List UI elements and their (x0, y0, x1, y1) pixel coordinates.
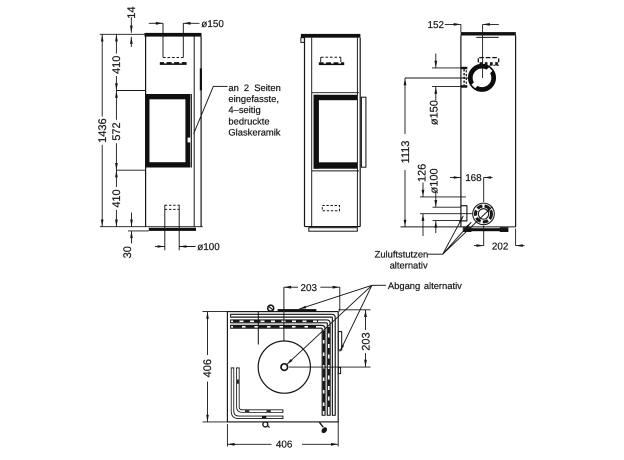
svg-text:152: 152 (428, 20, 444, 31)
svg-text:572: 572 (111, 122, 123, 140)
svg-text:168: 168 (465, 173, 482, 184)
svg-text:126: 126 (416, 164, 428, 182)
svg-text:410: 410 (111, 189, 123, 207)
svg-text:202: 202 (492, 241, 508, 252)
svg-text:ø150: ø150 (429, 100, 441, 125)
svg-text:Zuluftstutzen: Zuluftstutzen (375, 249, 429, 260)
svg-text:alternativ: alternativ (390, 260, 428, 271)
svg-text:ø100: ø100 (429, 168, 441, 193)
svg-text:410: 410 (111, 56, 123, 74)
svg-text:406: 406 (202, 359, 214, 377)
svg-text:Abgang alternativ: Abgang alternativ (388, 280, 462, 291)
svg-text:203: 203 (360, 332, 372, 350)
svg-text:ø150: ø150 (201, 19, 224, 30)
svg-text:1436: 1436 (97, 118, 109, 142)
svg-text:1113: 1113 (400, 141, 412, 164)
svg-text:ø100: ø100 (197, 242, 220, 253)
svg-text:203: 203 (301, 283, 318, 294)
svg-text:406: 406 (276, 440, 293, 451)
svg-text:14: 14 (126, 6, 138, 18)
svg-text:30: 30 (122, 246, 134, 258)
